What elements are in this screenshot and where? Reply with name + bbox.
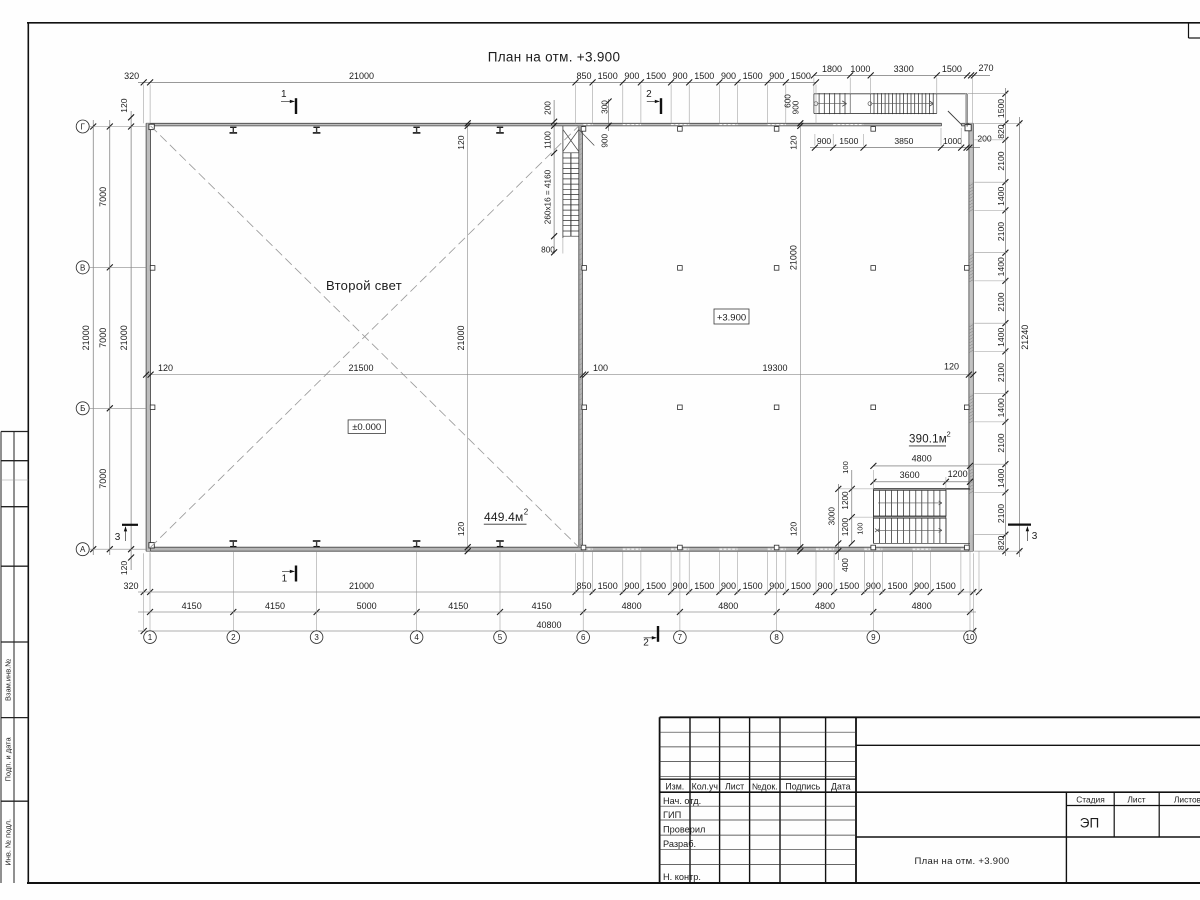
svg-text:План на отм. +3.900: План на отм. +3.900 bbox=[488, 50, 621, 65]
svg-text:820: 820 bbox=[996, 536, 1006, 551]
svg-text:21240: 21240 bbox=[1020, 325, 1030, 350]
svg-text:100: 100 bbox=[856, 523, 865, 535]
svg-text:6: 6 bbox=[581, 633, 586, 642]
svg-text:900: 900 bbox=[818, 581, 833, 591]
svg-text:320: 320 bbox=[123, 581, 138, 591]
svg-text:21000: 21000 bbox=[789, 245, 799, 270]
svg-text:10: 10 bbox=[966, 633, 975, 642]
svg-text:4800: 4800 bbox=[912, 454, 932, 464]
svg-text:40800: 40800 bbox=[536, 620, 561, 630]
svg-text:900: 900 bbox=[624, 71, 639, 81]
svg-text:1000: 1000 bbox=[943, 136, 962, 146]
svg-text:Дата: Дата bbox=[831, 782, 851, 792]
svg-text:21000: 21000 bbox=[349, 581, 374, 591]
svg-text:3: 3 bbox=[115, 532, 121, 543]
svg-text:2: 2 bbox=[947, 429, 951, 438]
svg-text:2100: 2100 bbox=[996, 504, 1006, 523]
svg-text:900: 900 bbox=[624, 581, 639, 591]
svg-text:3000: 3000 bbox=[828, 507, 837, 526]
svg-text:5: 5 bbox=[498, 633, 503, 642]
svg-text:4: 4 bbox=[414, 633, 419, 642]
svg-text:200: 200 bbox=[544, 101, 553, 115]
svg-text:3600: 3600 bbox=[900, 470, 920, 480]
svg-text:Стадия: Стадия bbox=[1076, 795, 1105, 805]
svg-text:21500: 21500 bbox=[348, 363, 373, 373]
svg-text:7000: 7000 bbox=[98, 187, 108, 207]
svg-text:Н. контр.: Н. контр. bbox=[663, 872, 701, 882]
svg-text:2100: 2100 bbox=[996, 363, 1006, 382]
svg-text:300: 300 bbox=[601, 100, 610, 114]
svg-text:1500: 1500 bbox=[598, 581, 618, 591]
svg-text:Б: Б bbox=[80, 404, 85, 413]
svg-text:21000: 21000 bbox=[119, 325, 129, 350]
svg-text:3850: 3850 bbox=[894, 136, 913, 146]
svg-text:4150: 4150 bbox=[448, 601, 468, 611]
svg-text:1000: 1000 bbox=[850, 64, 870, 74]
svg-text:9: 9 bbox=[871, 633, 876, 642]
svg-text:850: 850 bbox=[576, 71, 591, 81]
svg-text:900: 900 bbox=[721, 581, 736, 591]
svg-text:Разраб.: Разраб. bbox=[663, 839, 696, 849]
svg-text:1500: 1500 bbox=[646, 581, 666, 591]
svg-text:1500: 1500 bbox=[694, 71, 714, 81]
svg-text:120: 120 bbox=[119, 98, 129, 113]
svg-text:4800: 4800 bbox=[815, 601, 835, 611]
svg-text:План на отм. +3.900: План на отм. +3.900 bbox=[915, 856, 1010, 867]
svg-text:1200: 1200 bbox=[841, 491, 850, 510]
svg-text:7000: 7000 bbox=[98, 328, 108, 348]
svg-text:120: 120 bbox=[456, 135, 466, 150]
svg-text:Проверил: Проверил bbox=[663, 825, 705, 835]
svg-text:100: 100 bbox=[841, 461, 850, 474]
svg-text:5000: 5000 bbox=[357, 601, 377, 611]
svg-text:1400: 1400 bbox=[996, 328, 1006, 347]
svg-text:4800: 4800 bbox=[718, 601, 738, 611]
svg-text:1400: 1400 bbox=[996, 257, 1006, 276]
svg-text:1500: 1500 bbox=[996, 99, 1006, 118]
svg-text:1500: 1500 bbox=[936, 581, 956, 591]
svg-text:4150: 4150 bbox=[182, 601, 202, 611]
svg-text:2100: 2100 bbox=[996, 222, 1006, 241]
svg-text:1800: 1800 bbox=[822, 64, 842, 74]
svg-text:120: 120 bbox=[789, 522, 799, 537]
svg-text:900: 900 bbox=[769, 71, 784, 81]
svg-text:Взам.инв.№: Взам.инв.№ bbox=[4, 659, 13, 701]
svg-text:1200: 1200 bbox=[948, 469, 968, 479]
svg-text:1500: 1500 bbox=[646, 71, 666, 81]
svg-text:1500: 1500 bbox=[791, 581, 811, 591]
svg-text:1500: 1500 bbox=[743, 71, 763, 81]
svg-text:2: 2 bbox=[646, 89, 652, 100]
svg-text:Лист: Лист bbox=[1127, 795, 1145, 805]
svg-text:320: 320 bbox=[124, 71, 139, 81]
svg-text:1500: 1500 bbox=[694, 581, 714, 591]
svg-text:900: 900 bbox=[673, 581, 688, 591]
svg-text:2100: 2100 bbox=[996, 292, 1006, 311]
svg-text:2100: 2100 bbox=[996, 433, 1006, 452]
svg-text:Изм.: Изм. bbox=[665, 782, 684, 792]
svg-text:Второй свет: Второй свет bbox=[326, 278, 402, 293]
svg-text:100: 100 bbox=[593, 363, 608, 373]
svg-text:260x16 = 4160: 260x16 = 4160 bbox=[544, 169, 553, 224]
svg-text:ГИП: ГИП bbox=[663, 810, 681, 820]
svg-text:1: 1 bbox=[148, 633, 153, 642]
svg-text:3300: 3300 bbox=[894, 64, 914, 74]
svg-text:120: 120 bbox=[158, 363, 173, 373]
svg-text:1: 1 bbox=[282, 574, 288, 585]
svg-text:Лист: Лист bbox=[725, 782, 744, 792]
svg-text:900: 900 bbox=[914, 581, 929, 591]
svg-text:1500: 1500 bbox=[942, 64, 962, 74]
svg-text:2100: 2100 bbox=[996, 151, 1006, 170]
svg-text:21000: 21000 bbox=[81, 325, 91, 350]
svg-text:±0.000: ±0.000 bbox=[352, 422, 381, 433]
svg-text:1500: 1500 bbox=[839, 136, 858, 146]
svg-text:1100: 1100 bbox=[544, 131, 553, 149]
svg-text:120: 120 bbox=[119, 561, 129, 576]
svg-text:Кол.уч: Кол.уч bbox=[692, 782, 718, 792]
svg-text:Г: Г bbox=[81, 122, 86, 131]
svg-text:1500: 1500 bbox=[791, 71, 811, 81]
svg-text:4800: 4800 bbox=[912, 601, 932, 611]
svg-text:ЭП: ЭП bbox=[1080, 816, 1099, 831]
svg-text:1: 1 bbox=[281, 89, 287, 100]
svg-text:21000: 21000 bbox=[349, 71, 374, 81]
svg-text:19300: 19300 bbox=[762, 363, 787, 373]
svg-text:21000: 21000 bbox=[456, 325, 466, 350]
svg-text:7000: 7000 bbox=[98, 469, 108, 489]
svg-text:Нач. отд.: Нач. отд. bbox=[663, 796, 701, 806]
svg-text:270: 270 bbox=[978, 63, 993, 73]
svg-text:1500: 1500 bbox=[887, 581, 907, 591]
svg-text:120: 120 bbox=[944, 362, 959, 372]
svg-text:А: А bbox=[80, 545, 86, 554]
svg-text:2: 2 bbox=[643, 638, 649, 649]
svg-text:2: 2 bbox=[524, 508, 529, 517]
svg-text:1400: 1400 bbox=[996, 398, 1006, 417]
svg-text:3: 3 bbox=[1032, 531, 1038, 542]
svg-text:800: 800 bbox=[541, 246, 555, 255]
svg-text:1400: 1400 bbox=[996, 469, 1006, 488]
svg-text:900: 900 bbox=[601, 134, 610, 148]
svg-text:900: 900 bbox=[673, 71, 688, 81]
svg-text:900: 900 bbox=[792, 100, 801, 114]
svg-text:1500: 1500 bbox=[598, 71, 618, 81]
svg-text:1500: 1500 bbox=[839, 581, 859, 591]
svg-text:4150: 4150 bbox=[532, 601, 552, 611]
svg-text:3: 3 bbox=[314, 633, 319, 642]
svg-text:Листов: Листов bbox=[1174, 795, 1200, 805]
svg-text:820: 820 bbox=[996, 124, 1006, 139]
svg-text:Подпись: Подпись bbox=[785, 782, 820, 792]
svg-text:8: 8 bbox=[774, 633, 779, 642]
svg-text:4150: 4150 bbox=[265, 601, 285, 611]
svg-text:4800: 4800 bbox=[622, 601, 642, 611]
svg-text:Инв. № подл.: Инв. № подл. bbox=[4, 819, 13, 866]
svg-text:Подп. и дата: Подп. и дата bbox=[4, 736, 13, 781]
svg-text:390.1м: 390.1м bbox=[909, 433, 947, 445]
svg-text:1200: 1200 bbox=[841, 517, 850, 536]
svg-text:900: 900 bbox=[817, 136, 832, 146]
svg-text:1500: 1500 bbox=[743, 581, 763, 591]
svg-text:120: 120 bbox=[456, 522, 466, 537]
svg-text:900: 900 bbox=[721, 71, 736, 81]
svg-text:2: 2 bbox=[231, 633, 236, 642]
svg-text:850: 850 bbox=[576, 581, 591, 591]
svg-text:120: 120 bbox=[789, 135, 799, 150]
svg-text:В: В bbox=[80, 263, 85, 272]
svg-text:7: 7 bbox=[678, 633, 683, 642]
svg-text:449.4м: 449.4м bbox=[484, 510, 523, 524]
svg-text:400: 400 bbox=[841, 558, 850, 572]
svg-text:+3.900: +3.900 bbox=[717, 313, 746, 324]
svg-text:1400: 1400 bbox=[996, 187, 1006, 206]
svg-text:№док.: №док. bbox=[752, 782, 778, 792]
svg-text:200: 200 bbox=[977, 134, 992, 144]
